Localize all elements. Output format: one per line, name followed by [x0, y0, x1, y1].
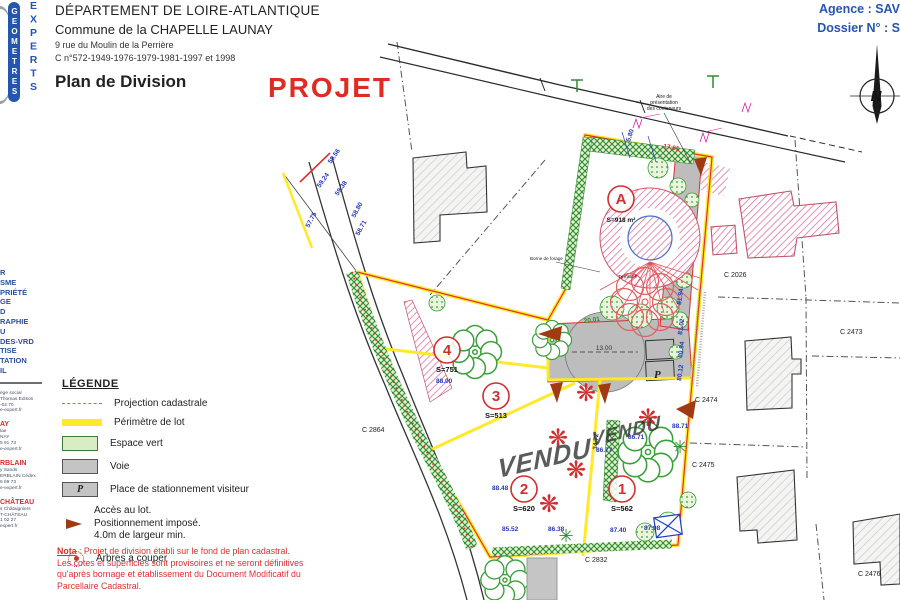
- parking-p-label: P: [654, 369, 661, 381]
- lot-area: S=620: [513, 504, 535, 513]
- service-item: DES-VRD: [0, 337, 48, 347]
- service-item: TATION: [0, 356, 48, 366]
- dossier-line: Dossier N° : S: [817, 19, 900, 38]
- lot-area: S=513: [485, 411, 507, 420]
- tree-to-cut-icon: ❋: [539, 491, 559, 518]
- office-block: AY lae NAY 5 91 73 e-expert.fr: [0, 421, 48, 453]
- parking-swatch: P: [62, 482, 98, 497]
- parcel-label: C 2864: [362, 427, 385, 434]
- office-line: e-expert.fr: [0, 408, 48, 414]
- access-arrow-icon: [66, 519, 82, 529]
- parcel-label: C 2832: [585, 557, 608, 564]
- nota-text: : Projet de division établi sur le fond …: [77, 546, 290, 556]
- dim-label: 58.80: [351, 201, 365, 219]
- service-item: D: [0, 307, 48, 317]
- legend-label-line: Accès au lot.: [94, 505, 201, 518]
- legend-label: Place de stationnement visiteur: [110, 484, 249, 495]
- dim-label: 87.98: [644, 525, 661, 532]
- turning-circle-diameter: 13.00: [596, 345, 613, 352]
- building-footprint: [413, 152, 487, 243]
- north-letter: N: [871, 88, 883, 105]
- legend-item-stationnement: P Place de stationnement visiteur: [62, 482, 322, 497]
- dim-label: 86.38: [548, 526, 565, 533]
- lot-area: S=562: [611, 504, 633, 513]
- gray-structure: [527, 558, 557, 600]
- dim-label: 5.80: [625, 128, 636, 143]
- legend-item-acces: Accès au lot. Positionnement imposé. 4.0…: [62, 505, 322, 543]
- nota-label: Nota: [57, 546, 77, 556]
- projet-stamp: PROJET: [268, 72, 392, 104]
- plan-de-division-document: ❋ ❋ ❋ ❋ ❋ ✳ ✳ A S=918 m²: [0, 0, 900, 600]
- lot-area: S=751: [436, 365, 458, 374]
- cadastre-references: C n°572-1949-1976-1979-1981-1997 et 1998: [55, 53, 320, 63]
- nota-line: qu'après bornage et établissement du Doc…: [57, 569, 377, 581]
- dim-label: 87.40: [610, 527, 627, 534]
- lot-number: 1: [618, 481, 626, 498]
- borne-leader-line: [556, 262, 600, 272]
- building-footprint-hatched-pink: [739, 191, 839, 258]
- lot-number: 3: [492, 388, 500, 405]
- dim-label: 88.48: [492, 485, 509, 492]
- office-line: expert.fr: [0, 524, 48, 530]
- hatched-strip: [700, 162, 730, 196]
- borne-label: Borne de forage: [530, 256, 563, 261]
- shrub-icon: ✳: [672, 437, 687, 457]
- service-item: IL: [0, 366, 48, 376]
- logo-experts: EXPERTS: [28, 0, 39, 95]
- commune-title: Commune de la CHAPELLE LAUNAY: [55, 22, 320, 37]
- north-compass-icon: N: [850, 44, 900, 124]
- gray-box-swatch: [62, 459, 98, 474]
- legend-label: Périmètre de lot: [114, 417, 185, 428]
- legend-label: Voie: [110, 461, 129, 472]
- survey-ticks: [640, 114, 722, 132]
- nota-line: Nota : Projet de division établi sur le …: [57, 546, 377, 558]
- building-footprint: [737, 470, 797, 543]
- legend-label: Projection cadastrale: [114, 398, 207, 409]
- lot-number: A: [616, 191, 627, 208]
- logo-geometres: GEOMETRES: [8, 2, 20, 102]
- parcel-label: C 2476: [858, 571, 881, 578]
- nota-line: Les cotes et superficies sont provisoire…: [57, 558, 377, 570]
- lot-number: 4: [443, 342, 452, 359]
- dim-label: 88.00: [436, 378, 453, 385]
- office-block: ège social Thomas Edison -02 70 e-expert…: [0, 391, 48, 415]
- yellow-band-swatch: [62, 419, 102, 426]
- nota-note: Nota : Projet de division établi sur le …: [57, 546, 377, 592]
- parcel-label: C 2474: [695, 397, 718, 404]
- office-city: RBLAIN: [0, 460, 48, 468]
- dim-label: 59.56: [327, 147, 342, 165]
- building-footprint-hatched-pink: [711, 225, 737, 255]
- tree-outline: [481, 556, 529, 600]
- service-item: R: [0, 268, 48, 278]
- parcel-label: C 2475: [692, 462, 715, 469]
- legend-label: Espace vert: [110, 438, 163, 449]
- lot-number: 2: [520, 481, 528, 498]
- office-block: RBLAIN y Sands ERBLAIN Cédex 6 59 73 e-e…: [0, 460, 48, 492]
- legend-title: LÉGENDE: [62, 378, 322, 390]
- building-footprint: [745, 337, 801, 410]
- dim-label: 59.38: [334, 179, 349, 197]
- sidebar-divider: [0, 382, 42, 384]
- dashed-line-swatch: [62, 403, 102, 404]
- containers-label: des conteneurs: [647, 106, 682, 112]
- firm-sidebar: R SME PRIÉTÉ GE D RAPHIE U DES-VRD TISE …: [0, 268, 48, 530]
- legend-label-line: Positionnement imposé.: [94, 518, 201, 531]
- dim-label: 59.24: [316, 171, 331, 189]
- lot-marker-A: A S=918 m²: [607, 186, 637, 224]
- legend-item-perimetre: Périmètre de lot: [62, 417, 322, 428]
- agency-line: Agence : SAV: [817, 0, 900, 19]
- office-line: e-expert.fr: [0, 486, 48, 492]
- legend-item-espace-vert: Espace vert: [62, 436, 322, 451]
- parcel-label: C 2473: [840, 329, 863, 336]
- dim-label: 58.71: [355, 219, 369, 237]
- office-line: e-expert.fr: [0, 447, 48, 453]
- service-item: PRIÉTÉ: [0, 288, 48, 298]
- geometres-experts-logo: GEOMETRES EXPERTS: [0, 0, 50, 110]
- tree-to-cut-icon: ❋: [576, 380, 596, 407]
- service-item: U: [0, 327, 48, 337]
- legend-item-projection: Projection cadastrale: [62, 398, 322, 409]
- lot-marker-4: 4 S=751: [434, 337, 460, 374]
- tree-outline: [532, 320, 571, 359]
- green-box-swatch: [62, 436, 98, 451]
- department-title: DÉPARTEMENT DE LOIRE-ATLANTIQUE: [55, 3, 320, 18]
- agency-dossier-block: Agence : SAV Dossier N° : S: [817, 0, 900, 38]
- lot-area: S=918 m²: [607, 217, 637, 224]
- legend-item-voie: Voie: [62, 459, 322, 474]
- dim-label: 88.71: [672, 423, 689, 430]
- office-city: AY: [0, 421, 48, 429]
- lot-marker-1: 1 S=562: [609, 476, 635, 513]
- service-item: SME: [0, 278, 48, 288]
- office-block: CHÂTEAU s Châtaigniers T-CHÂTEAU 1 02 27…: [0, 499, 48, 531]
- service-item: RAPHIE: [0, 317, 48, 327]
- office-city: CHÂTEAU: [0, 499, 48, 507]
- parcel-label: C 2026: [724, 272, 747, 279]
- service-item: TISE: [0, 346, 48, 356]
- nota-line: Parcellaire Cadastral.: [57, 581, 377, 593]
- site-address: 9 rue du Moulin de la Perrière: [55, 40, 320, 50]
- service-item: GE: [0, 297, 48, 307]
- lot-marker-3: 3 S=513: [483, 383, 509, 420]
- dim-label: 85.52: [502, 526, 519, 533]
- dim-label: 57.75: [305, 211, 319, 229]
- legend-label-line: 4.0m de largeur min.: [94, 530, 201, 543]
- lot-marker-2: 2 S=620: [511, 476, 537, 513]
